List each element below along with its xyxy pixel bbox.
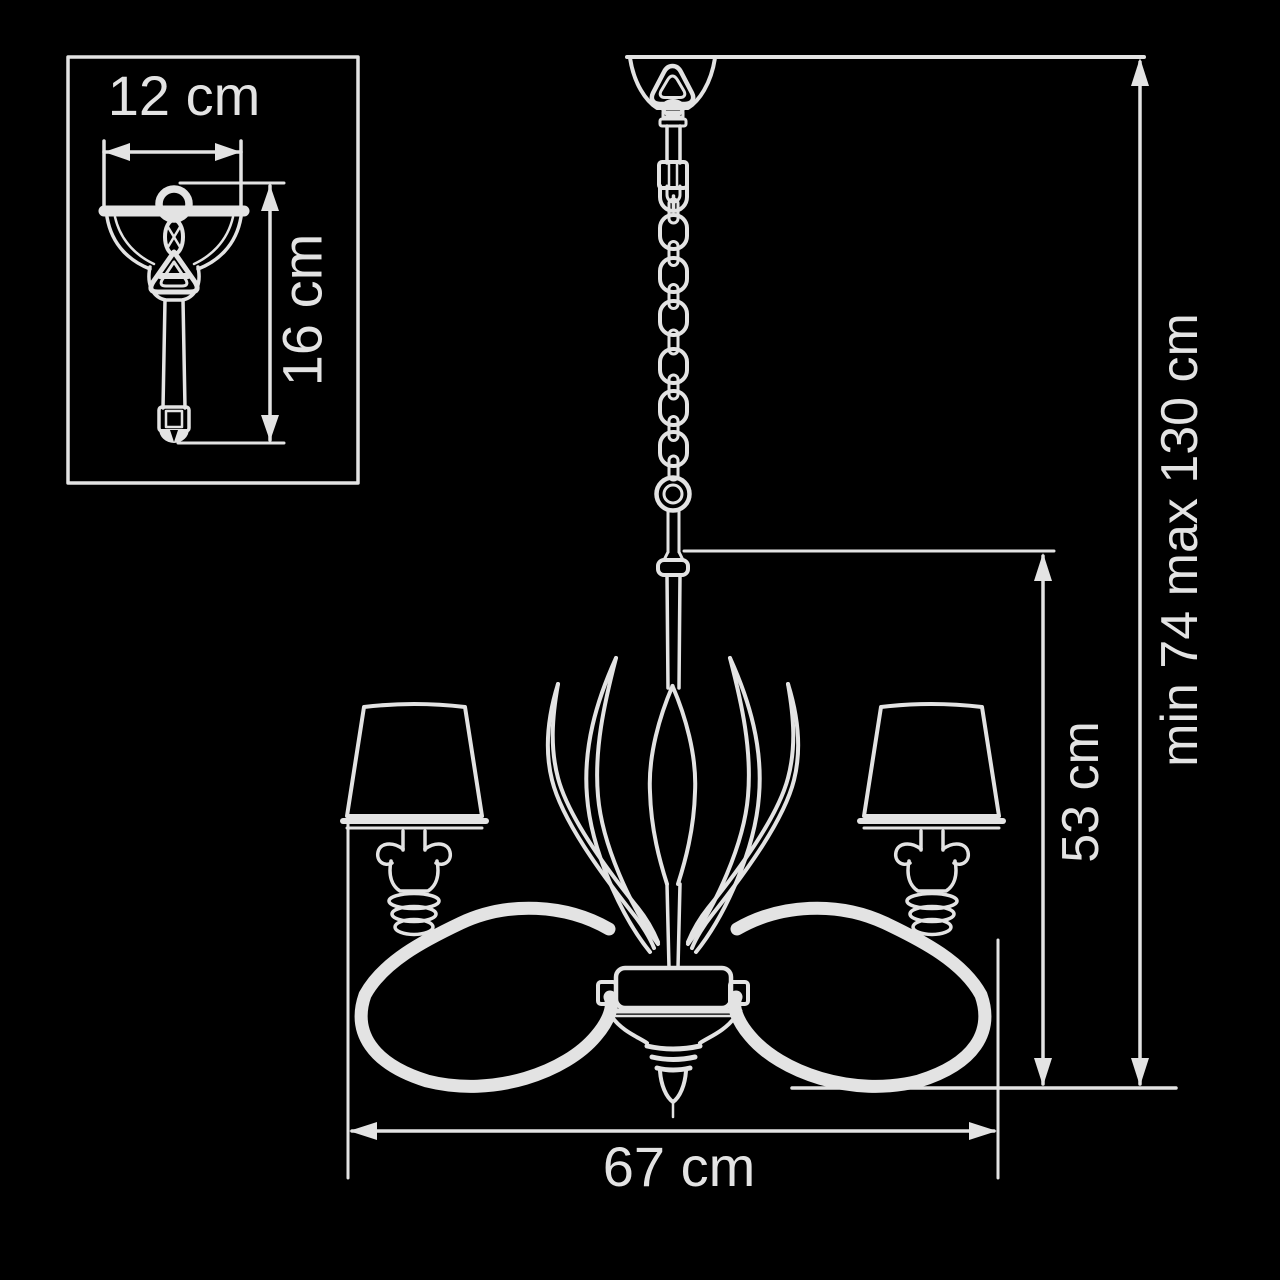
bell-cup <box>149 267 199 300</box>
arrowhead-left <box>349 1122 377 1140</box>
canopy-assembly <box>630 58 715 211</box>
arrowhead-up <box>1131 58 1149 86</box>
left-lamp <box>343 704 486 935</box>
right-lamp <box>860 704 1003 935</box>
candle-cup <box>908 861 956 891</box>
finial-neck <box>612 1017 647 1043</box>
center-rod-lower <box>667 884 669 968</box>
inset-panel: 12 cm 16 cm <box>68 57 358 483</box>
inset-height-label: 16 cm <box>271 234 334 387</box>
center-bud <box>650 686 673 884</box>
inset-width-label: 12 cm <box>108 64 261 127</box>
suspension-ring <box>657 478 690 511</box>
chain-link <box>660 215 687 249</box>
arrowhead-right <box>969 1122 997 1140</box>
hub-assembly <box>598 968 748 1117</box>
suspension-ring-inner <box>664 485 682 503</box>
chandelier-dimension-diagram: 12 cm 16 cm <box>0 0 1280 1280</box>
chain-link <box>660 391 687 425</box>
finial-ring <box>647 1046 700 1049</box>
lampshade-right <box>864 704 999 816</box>
arrowhead-down <box>1034 1058 1052 1086</box>
candle-cup <box>390 861 438 891</box>
stem-left <box>163 300 165 408</box>
center-bud <box>673 686 696 884</box>
arm-loop-right <box>735 908 985 1086</box>
leaf-outer-right <box>688 684 793 942</box>
collar-bottom <box>660 119 686 126</box>
center-rod <box>667 575 668 688</box>
chain-link-narrow <box>669 375 678 399</box>
arrowhead-right <box>215 143 241 161</box>
fixture-width-label: 67 cm <box>603 1135 756 1198</box>
arrowhead-up <box>261 185 279 211</box>
arrowhead-up <box>1034 553 1052 581</box>
arrowhead-left <box>104 143 130 161</box>
chain-link-narrow <box>669 242 678 266</box>
finial-point <box>660 1071 686 1102</box>
arrowhead-down <box>261 415 279 441</box>
stem-block-inner <box>166 411 182 427</box>
finial-ring <box>652 1057 695 1060</box>
arrowhead-down <box>1131 1058 1149 1086</box>
bell-inner-left <box>115 217 154 264</box>
overall-height-dimension: min 74 max 130 cm <box>792 58 1209 1088</box>
body-height-label: 53 cm <box>1052 721 1110 863</box>
chain-link-narrow <box>669 285 678 309</box>
center-rod-lower <box>678 884 680 968</box>
overall-height-label: min 74 max 130 cm <box>1151 313 1209 767</box>
bell-inner-right <box>194 217 233 264</box>
arm-loop-left <box>361 908 611 1086</box>
rod-collar <box>658 560 688 575</box>
diagram-canvas: 12 cm 16 cm <box>0 0 1280 1280</box>
turnbuckle <box>659 162 687 188</box>
chain-link <box>660 432 687 466</box>
triangle-hook-inner <box>660 76 685 98</box>
ceiling-mount-detail <box>104 189 244 443</box>
hub-body <box>616 968 731 1008</box>
stem-right <box>183 300 185 408</box>
inset-height-dimension: 16 cm <box>178 183 334 443</box>
lampshade-left <box>347 704 482 816</box>
leaf-inner-right <box>688 658 749 944</box>
leaf-ornaments <box>548 658 799 952</box>
chain-link <box>660 258 687 292</box>
center-rod <box>679 575 680 688</box>
chain-link-narrow <box>669 417 678 441</box>
chain <box>660 199 687 480</box>
finial-neck <box>700 1017 735 1043</box>
main-diagram: 53 cm min 74 max 130 cm 67 cm <box>343 57 1209 1198</box>
leaf-outer-left <box>553 684 658 942</box>
